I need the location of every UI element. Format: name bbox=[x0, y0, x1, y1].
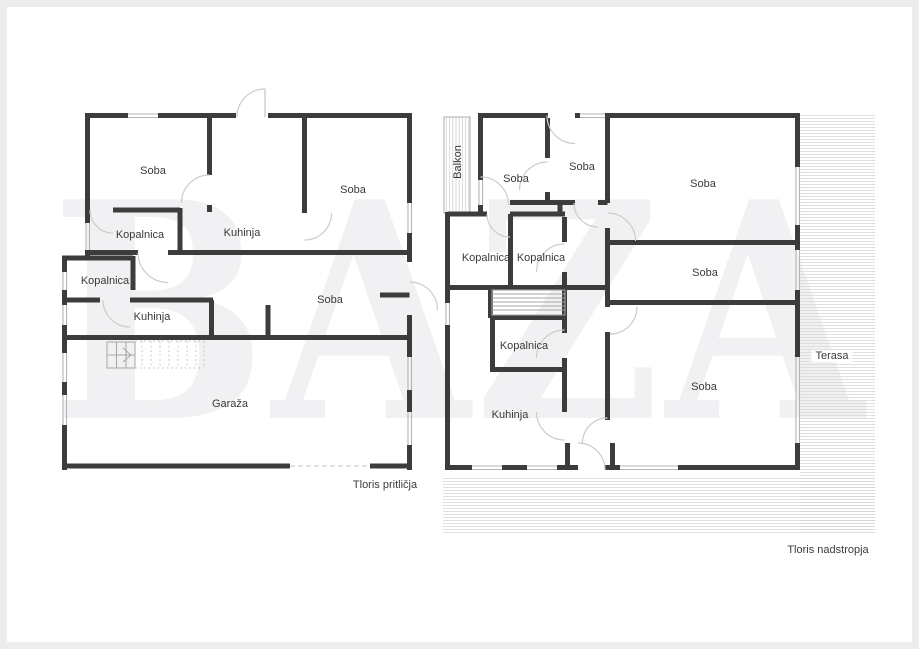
upper-floor-caption: Tloris nadstropja bbox=[787, 544, 868, 556]
room-label-kuhinja: Kuhinja bbox=[492, 409, 529, 421]
room-label-kopalnica: Kopalnica bbox=[517, 252, 565, 264]
room-label-soba: Soba bbox=[340, 184, 366, 196]
ground-walls bbox=[62, 113, 412, 470]
ground-floor-caption: Tloris pritličja bbox=[353, 479, 417, 491]
room-label-soba: Soba bbox=[569, 161, 595, 173]
upper-stairs bbox=[492, 290, 565, 315]
room-label-soba: Soba bbox=[317, 294, 343, 306]
room-label-soba: Soba bbox=[692, 267, 718, 279]
room-label-soba: Soba bbox=[691, 381, 717, 393]
floorplan-page: BAZA bbox=[7, 7, 912, 642]
room-label-garaza: Garaža bbox=[212, 398, 248, 410]
room-label-soba: Soba bbox=[690, 178, 716, 190]
room-label-kuhinja: Kuhinja bbox=[134, 311, 171, 323]
ground-stairs bbox=[107, 341, 204, 368]
area-label-balkon: Balkon bbox=[452, 145, 464, 179]
room-label-soba: Soba bbox=[503, 173, 529, 185]
room-label-kopalnica: Kopalnica bbox=[500, 340, 548, 352]
room-label-kopalnica: Kopalnica bbox=[116, 229, 164, 241]
room-label-kopalnica: Kopalnica bbox=[462, 252, 510, 264]
area-label-terasa: Terasa bbox=[811, 350, 852, 362]
room-label-soba: Soba bbox=[140, 165, 166, 177]
room-label-kopalnica: Kopalnica bbox=[81, 275, 129, 287]
image-frame: BAZA bbox=[0, 0, 919, 649]
floorplan-drawing bbox=[7, 7, 912, 642]
room-label-kuhinja: Kuhinja bbox=[224, 227, 261, 239]
